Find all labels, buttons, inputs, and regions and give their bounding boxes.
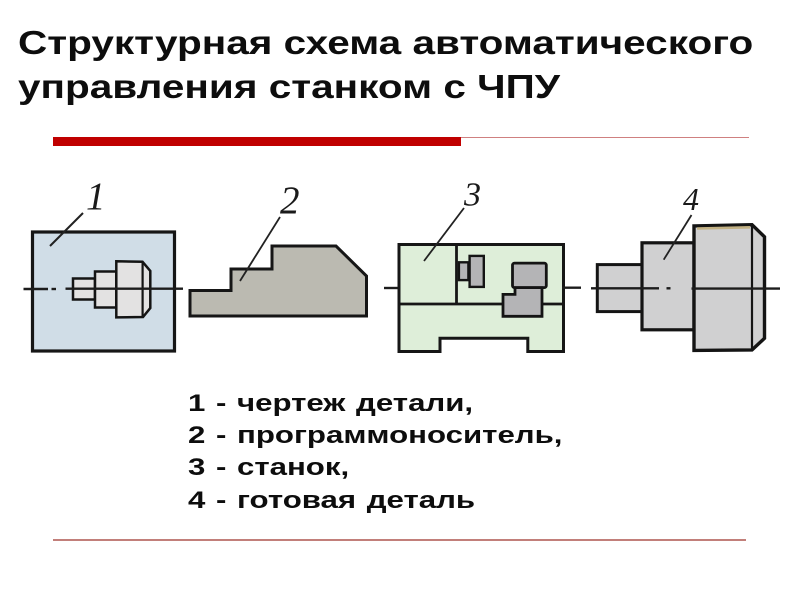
- svg-text:4: 4: [683, 181, 699, 217]
- svg-text:1: 1: [86, 175, 106, 218]
- svg-text:3: 3: [463, 177, 481, 214]
- svg-text:2: 2: [280, 179, 300, 222]
